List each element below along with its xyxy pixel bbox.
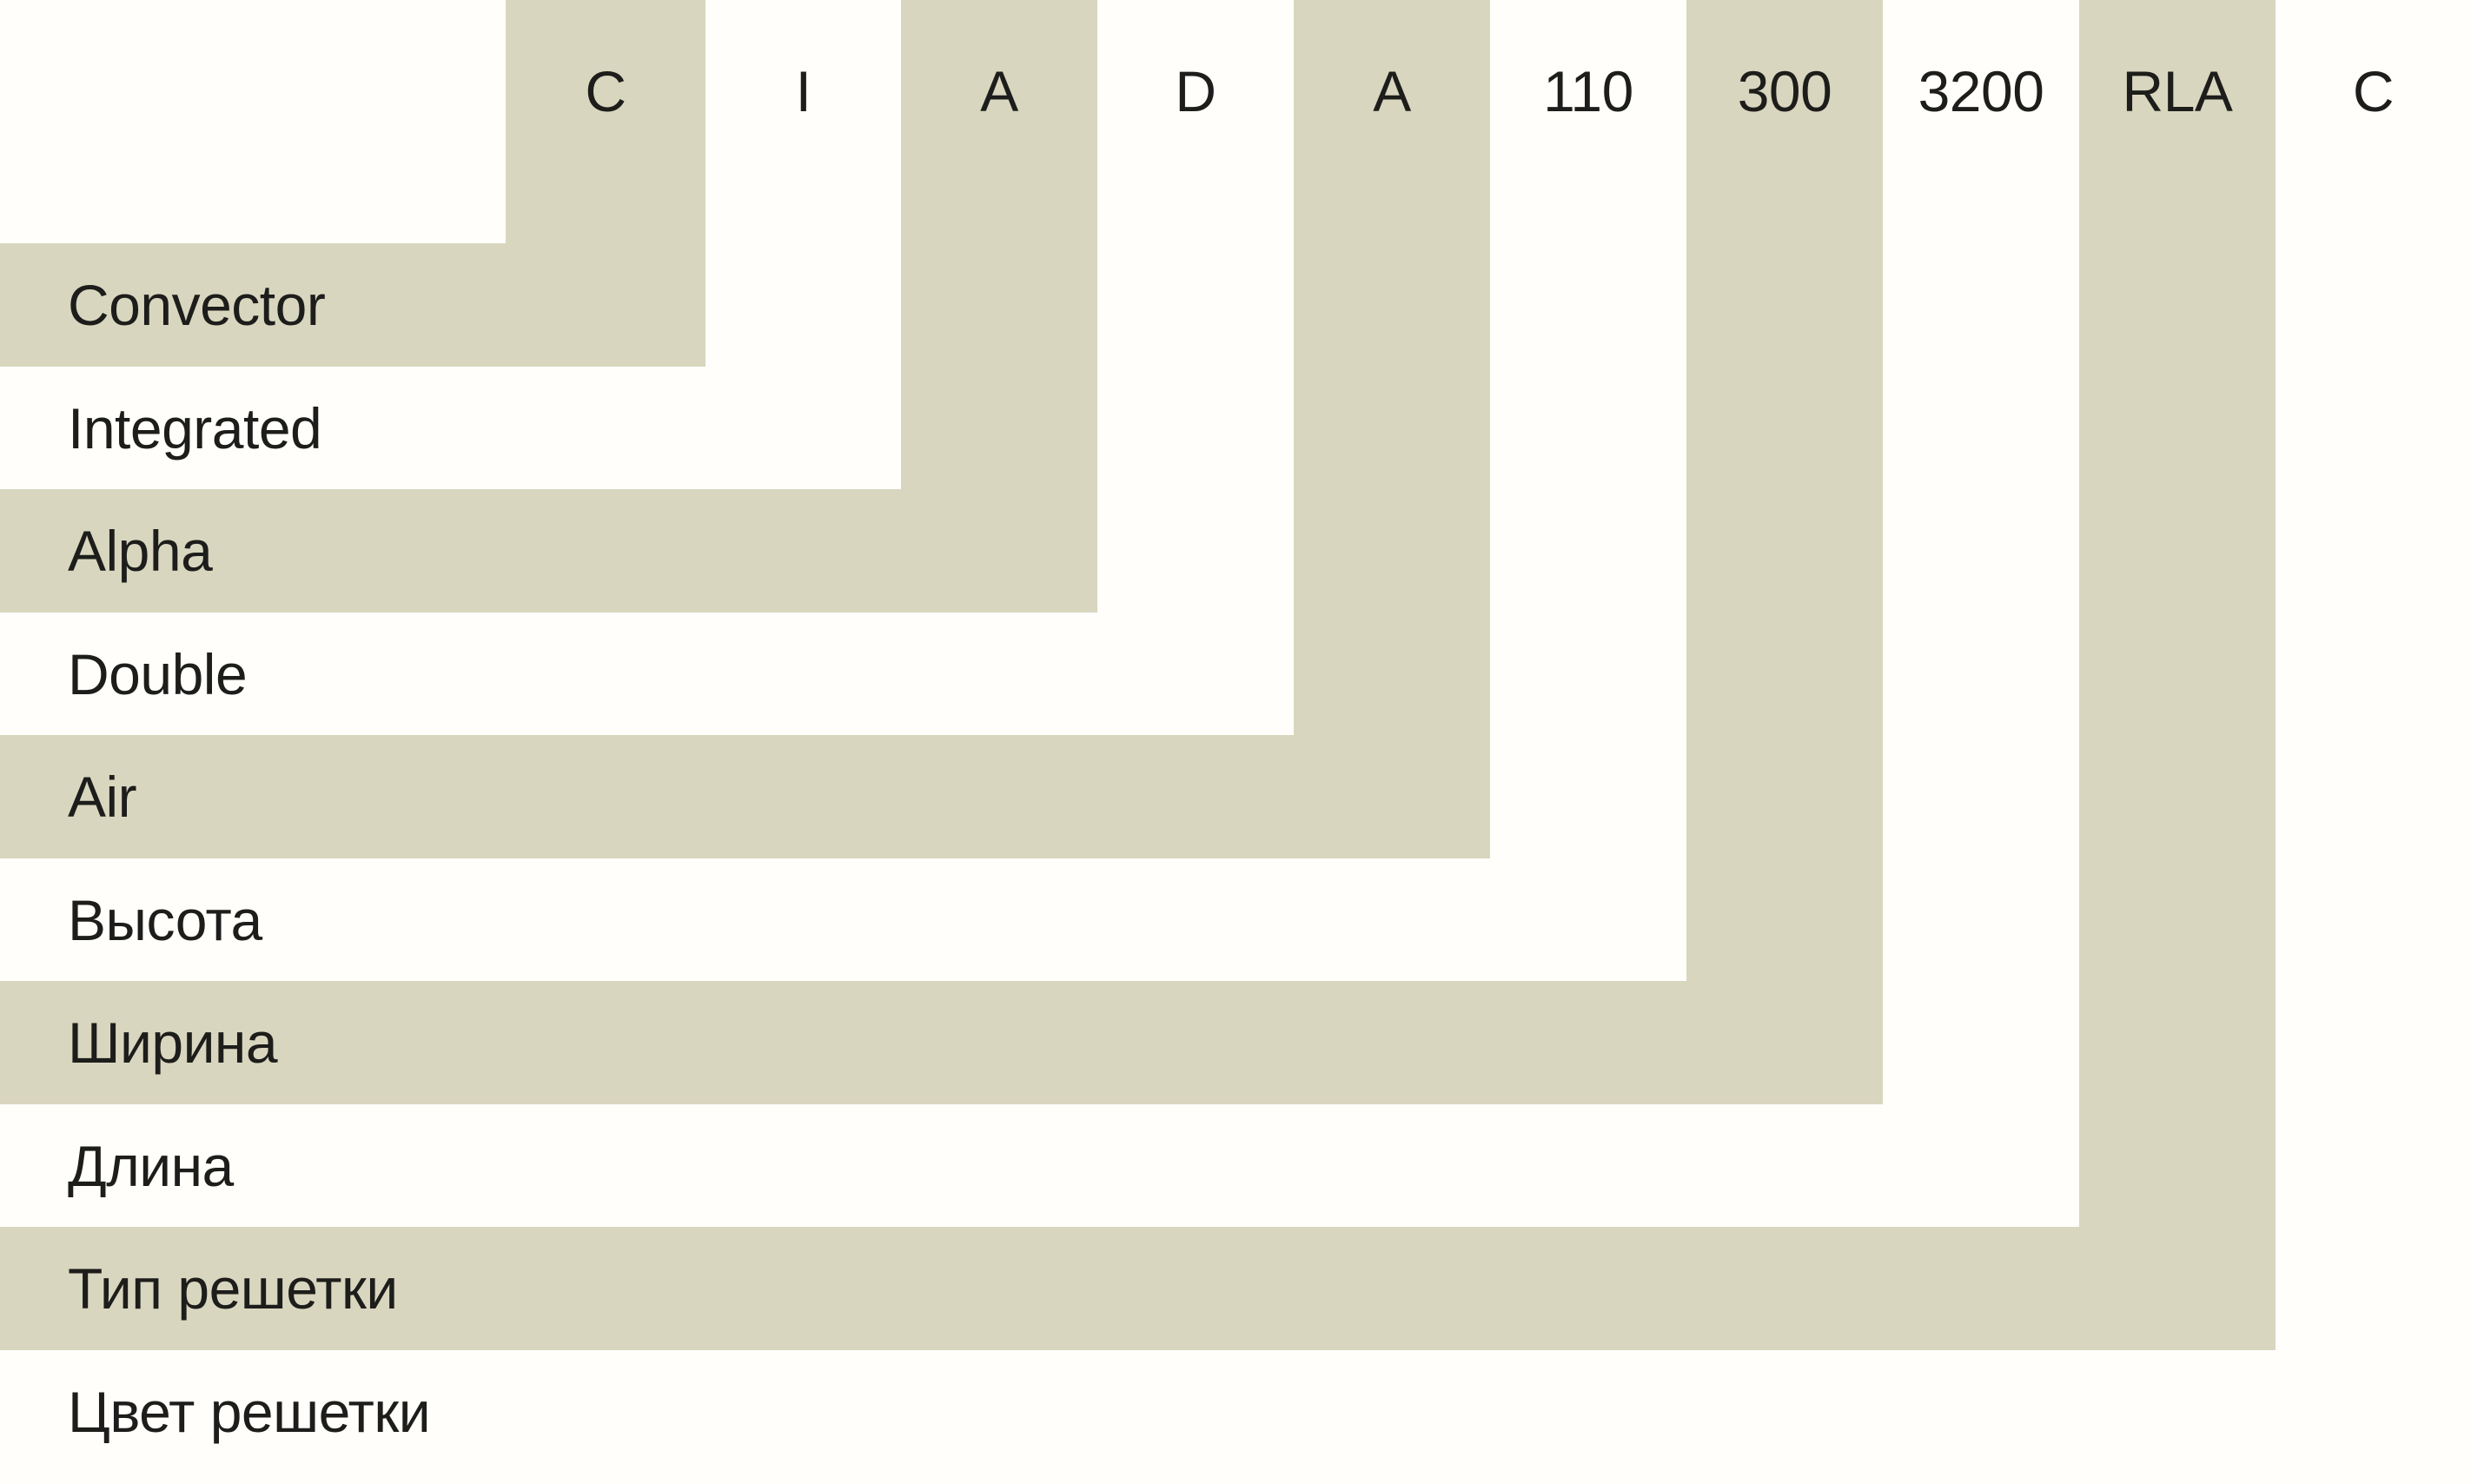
row-label-integrated: Integrated <box>0 367 1216 489</box>
code-segment-double: D <box>1097 0 1294 182</box>
code-segment-grille-type: RLA <box>2079 0 2276 182</box>
row-label-length: Длина <box>0 1104 1216 1227</box>
code-segment-width: 300 <box>1686 0 1883 182</box>
row-label-air: Air <box>0 735 1216 858</box>
row-label-alpha: Alpha <box>0 489 1216 613</box>
row-label-double: Double <box>0 613 1216 735</box>
code-segment-air: A <box>1294 0 1490 182</box>
code-segment-alpha: A <box>901 0 1097 182</box>
row-label-grille-color: Цвет решетки <box>0 1350 1216 1473</box>
code-segment-length: 3200 <box>1883 0 2079 182</box>
row-label-grille-type: Тип решетки <box>0 1227 1216 1350</box>
row-label-height: Высота <box>0 858 1216 981</box>
code-segment-grille-color: C <box>2276 0 2471 182</box>
code-segment-convector: C <box>506 0 706 182</box>
code-segment-integrated: I <box>706 0 901 182</box>
row-label-convector: Convector <box>0 243 1216 367</box>
row-label-width: Ширина <box>0 981 1216 1104</box>
nomenclature-diagram: C I A D A 110 300 3200 RLA C Convector I… <box>0 0 2471 1484</box>
code-segment-height: 110 <box>1490 0 1686 182</box>
code-column-shade-grille-type <box>2079 0 2276 1350</box>
